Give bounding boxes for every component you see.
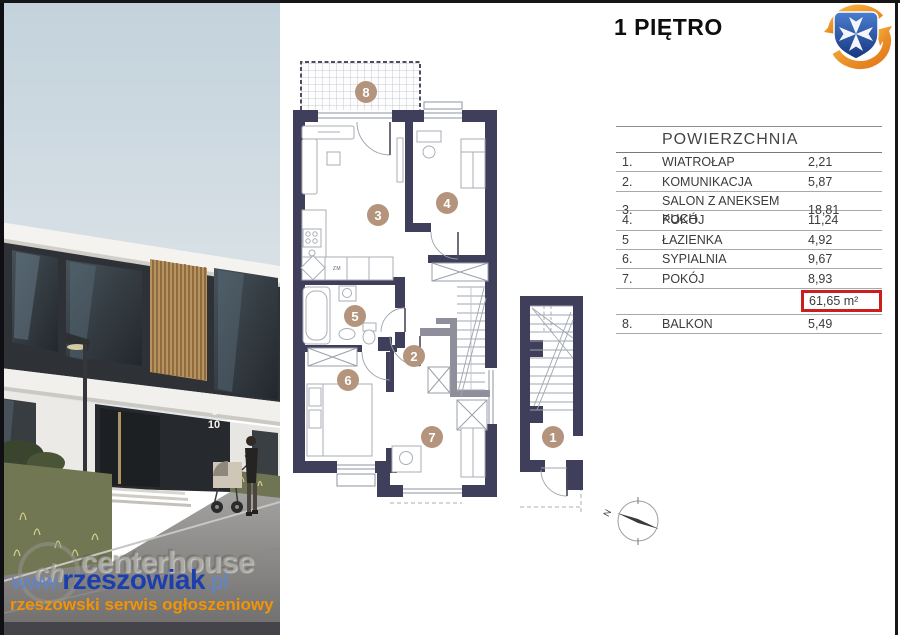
room-name: POKÓJ <box>662 270 808 288</box>
row-number: 7. <box>616 270 662 288</box>
room-badge-1: 1 <box>542 426 564 448</box>
site-url: www.rzeszowiak.pl <box>12 564 228 596</box>
dishwasher-label: ZM <box>333 266 341 272</box>
table-row: 4. POKÓJ 11,24 <box>616 211 882 230</box>
room-area: 11,24 <box>808 211 882 229</box>
walls <box>293 110 497 497</box>
shafts <box>308 263 488 430</box>
room-badge-6: 6 <box>337 369 359 391</box>
row-number: 6. <box>616 250 662 268</box>
room-area: 5,49 <box>808 315 882 333</box>
room-name: ŁAZIENKA <box>662 231 808 249</box>
table-header: POWIERZCHNIA <box>616 126 882 153</box>
room-name: SYPIALNIA <box>662 250 808 268</box>
room-badge-8: 8 <box>355 81 377 103</box>
stairs-main <box>457 287 486 396</box>
row-number: 8. <box>616 315 662 333</box>
room-name: KOMUNIKACJA <box>662 173 808 191</box>
room-area: 8,93 <box>808 270 882 288</box>
room-area: 5,87 <box>808 173 882 191</box>
compass <box>617 497 659 545</box>
wood-slats <box>150 259 207 381</box>
watermark: ch centerhouse agencja nieruchomości www… <box>0 540 278 622</box>
row-number: 2. <box>616 173 662 191</box>
room-area: 9,67 <box>808 250 882 268</box>
table-row: 1. WIATROŁAP 2,21 <box>616 153 882 172</box>
room-badge-3: 3 <box>367 204 389 226</box>
dashed-outlines <box>390 466 583 513</box>
windows <box>318 102 493 493</box>
room-badge-2: 2 <box>403 345 425 367</box>
furniture <box>301 126 485 477</box>
page-border-top <box>0 0 900 3</box>
room-badge-4: 4 <box>436 192 458 214</box>
page-border-right <box>895 0 898 635</box>
room-area: 2,21 <box>808 153 882 171</box>
room-badge-7: 7 <box>421 426 443 448</box>
url-main: rzeszowiak <box>62 564 205 596</box>
total-area-value: 61,65 m² <box>801 290 882 312</box>
rzeszow-crest-logo <box>820 2 896 70</box>
url-prefix: www. <box>12 571 62 595</box>
table-row: 7. POKÓJ 8,93 <box>616 269 882 288</box>
entrance-section <box>520 296 583 496</box>
partial-walls <box>420 318 490 397</box>
room-area: 4,92 <box>808 231 882 249</box>
site-slogan: rzeszowski serwis ogłoszeniowy <box>10 595 274 615</box>
url-suffix: .pl <box>205 569 228 595</box>
room-name: POKÓJ <box>662 211 808 229</box>
room-name: WIATROŁAP <box>662 153 808 171</box>
table-row: 5 ŁAZIENKA 4,92 <box>616 231 882 250</box>
table-row-balkon: 8. BALKON 5,49 <box>616 315 882 334</box>
floor-title: 1 PIĘTRO <box>614 14 723 41</box>
table-row: 3. SALON Z ANEKSEM KUCH. 18,81 <box>616 192 882 211</box>
room-name: BALKON <box>662 315 808 333</box>
house-number-9: 9 <box>204 405 226 417</box>
area-table: POWIERZCHNIA 1. WIATROŁAP 2,21 2. KOMUNI… <box>616 126 882 334</box>
listing-page: { "title": "1 PIĘTRO", "table": { "heade… <box>0 0 900 635</box>
table-row: 2. KOMUNIKACJA 5,87 <box>616 172 882 191</box>
row-number: 5 <box>616 231 662 249</box>
row-number: 4. <box>616 211 662 229</box>
room-badge-5: 5 <box>344 305 366 327</box>
doors <box>357 122 458 380</box>
house-number-10: 10 <box>203 419 225 431</box>
compass-north-label: N <box>601 508 613 518</box>
row-number: 1. <box>616 153 662 171</box>
table-row: 6. SYPIALNIA 9,67 <box>616 250 882 269</box>
total-area-row: 61,65 m² <box>616 289 882 315</box>
